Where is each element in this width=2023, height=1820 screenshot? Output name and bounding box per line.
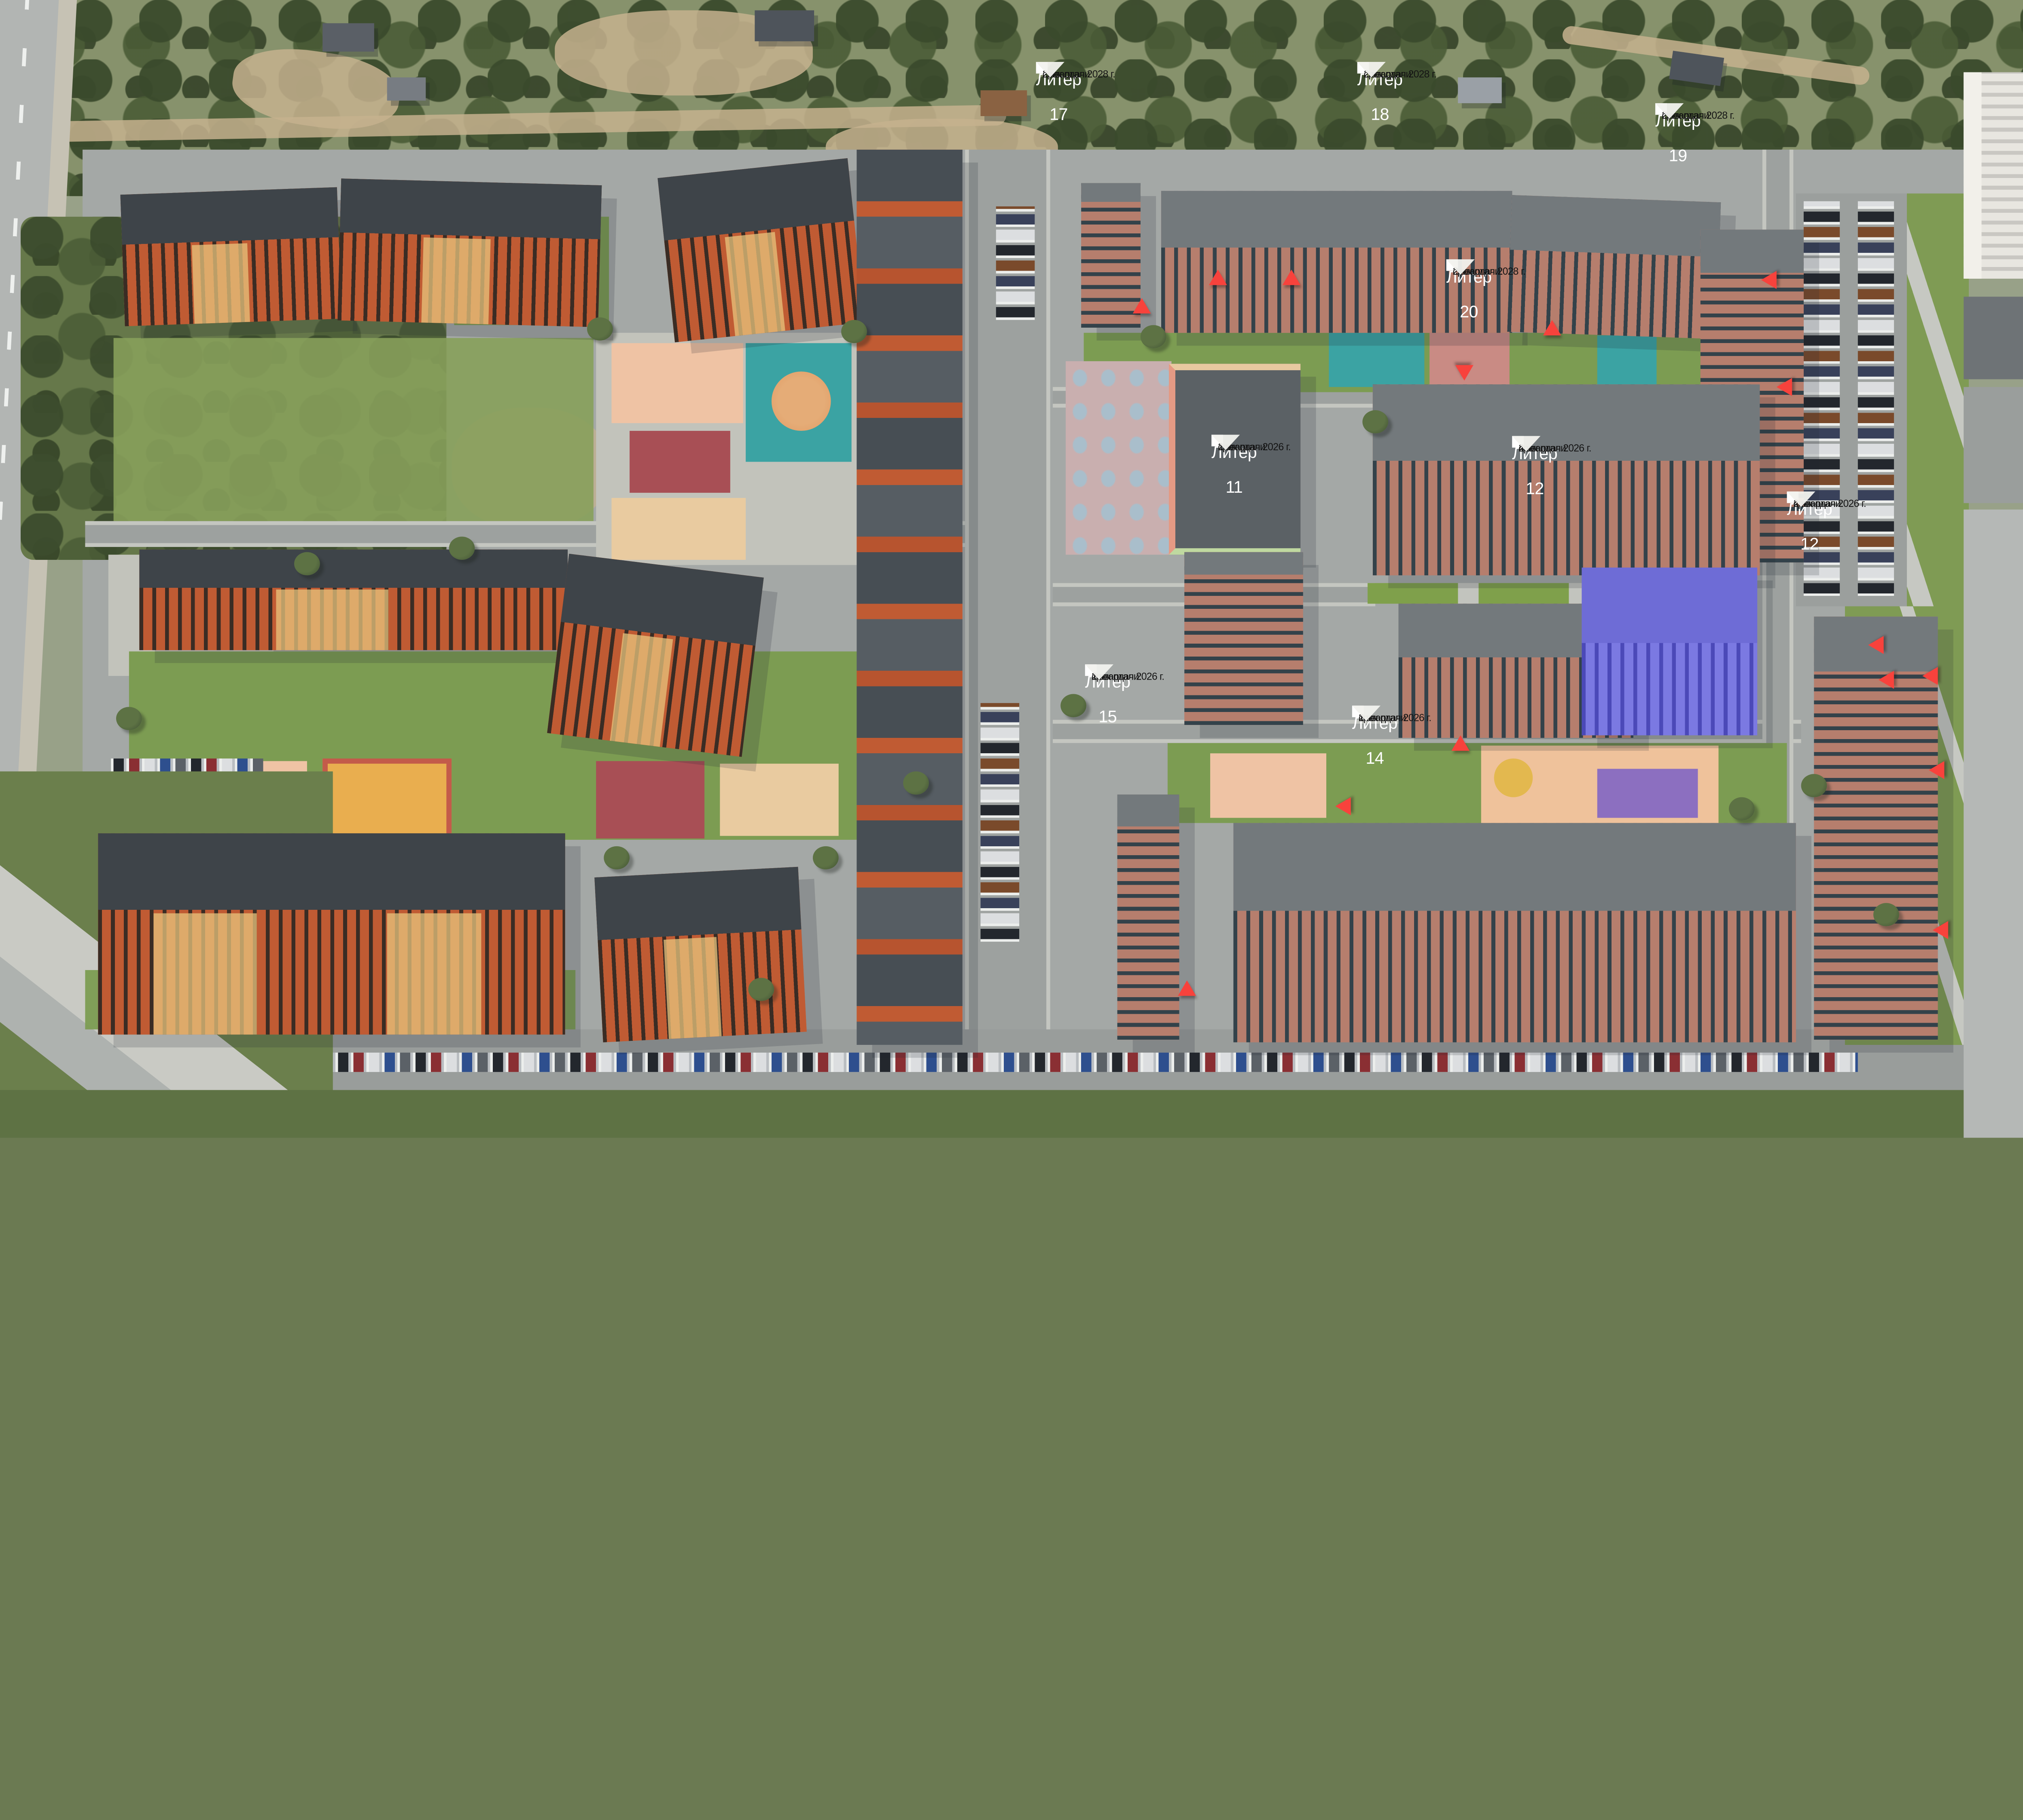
building-slab-sw2[interactable] [594, 867, 806, 1042]
label-pointer-icon [1357, 62, 1386, 77]
facade-accent [154, 914, 257, 1034]
tree [813, 846, 839, 869]
facade-accent [609, 633, 673, 747]
facade-accent [725, 232, 785, 336]
facade-accent [421, 237, 491, 324]
entrance-marker-icon [1868, 636, 1883, 654]
entrance-marker-icon [1922, 667, 1938, 685]
tree [1141, 325, 1166, 348]
village-house [980, 90, 1027, 116]
parking-column-north [996, 206, 1035, 320]
tree [903, 771, 929, 795]
label-pointer-icon [1512, 436, 1540, 451]
label-pointer-icon [1085, 664, 1113, 680]
genplan-stage: Литер 17 2 этап срок сдачи: 2 квартал 20… [0, 0, 2023, 1138]
label-pointer-icon [1446, 259, 1475, 275]
tree [116, 707, 142, 730]
label-pointer-icon [1655, 103, 1684, 119]
playground-sand [611, 498, 746, 560]
entrance-marker-icon [1543, 320, 1561, 335]
entrance-marker-icon [1209, 269, 1227, 285]
entrance-marker-icon [1777, 378, 1792, 396]
parking-column [1858, 201, 1894, 596]
tree [1873, 903, 1899, 926]
entrance-marker-icon [1335, 797, 1351, 816]
facade-accent [276, 590, 388, 650]
entrance-marker-icon [1451, 735, 1470, 751]
sport-court-purple [1597, 769, 1698, 818]
label-pointer-icon [1036, 62, 1065, 77]
facade-accent [191, 243, 250, 324]
playground-teal [1329, 333, 1424, 387]
entrance-marker-icon [1879, 671, 1894, 689]
building-slab-liter14[interactable] [1233, 823, 1796, 1042]
entrance-marker-icon [1929, 761, 1944, 779]
playground-salmon [611, 343, 743, 423]
entrance-marker-icon [1178, 980, 1196, 996]
building-slab-liter11[interactable] [1184, 552, 1303, 725]
entrance-marker-icon [1761, 271, 1777, 289]
label-pointer-icon [1352, 706, 1380, 721]
building-tower-east[interactable] [1814, 617, 1938, 1040]
tree [841, 320, 867, 343]
entrance-marker-icon [1283, 269, 1301, 285]
entrance-marker-icon [1133, 298, 1151, 314]
building-slab-nw1[interactable] [120, 187, 341, 326]
playground-salmon [1210, 753, 1326, 818]
tree [1060, 694, 1086, 717]
pavement-east-edge [1964, 510, 2023, 1138]
parking-row-south [103, 1053, 1858, 1072]
playground-circle [1494, 759, 1533, 797]
playground-red [630, 431, 730, 493]
playground-teal [1597, 335, 1657, 384]
facade-accent [663, 937, 721, 1039]
building-tower-liter15[interactable] [1117, 795, 1179, 1040]
village-house [322, 23, 374, 51]
facade-accent [388, 914, 481, 1034]
label-pointer-icon [1787, 492, 1815, 507]
parking-column-center [980, 703, 1019, 942]
grass-south [0, 1090, 2023, 1138]
building-chain-center[interactable] [857, 150, 962, 1045]
building-roof-gray [1964, 387, 2023, 503]
tree [748, 978, 774, 1001]
building-slab-nw3[interactable] [657, 158, 865, 342]
tree [294, 552, 320, 575]
playground-circle [772, 371, 831, 431]
building-slab-liter19[interactable] [1507, 195, 1721, 339]
building-slab-w2[interactable] [547, 554, 763, 757]
tree [1729, 797, 1755, 820]
village-house [1458, 77, 1501, 103]
building-slab-liter20[interactable] [1373, 384, 1760, 575]
village-house [755, 11, 814, 42]
building-slab-sw1[interactable] [98, 833, 565, 1034]
entrance-marker-icon [1455, 365, 1474, 380]
sport-court-red [596, 761, 704, 838]
kindergarten-yard [1066, 361, 1171, 555]
tree [587, 317, 613, 340]
tree [1362, 410, 1388, 433]
tree [449, 537, 475, 560]
sport-court-orange [322, 759, 452, 841]
playground-sand [720, 764, 838, 836]
village-house [387, 77, 426, 100]
building-tower-liter17[interactable] [1081, 183, 1141, 328]
entrance-marker-icon [1933, 921, 1948, 939]
building-slab-nw2[interactable] [337, 178, 602, 327]
building-white-highrise [1964, 72, 2023, 279]
tree [604, 846, 630, 869]
building-liter12-highlighted[interactable] [1582, 568, 1757, 735]
courtyard-lawn [114, 338, 594, 521]
building-roof-gray [1964, 297, 2023, 379]
tree [1801, 774, 1827, 797]
building-slab-w1[interactable] [139, 549, 568, 650]
label-pointer-icon [1211, 435, 1240, 450]
